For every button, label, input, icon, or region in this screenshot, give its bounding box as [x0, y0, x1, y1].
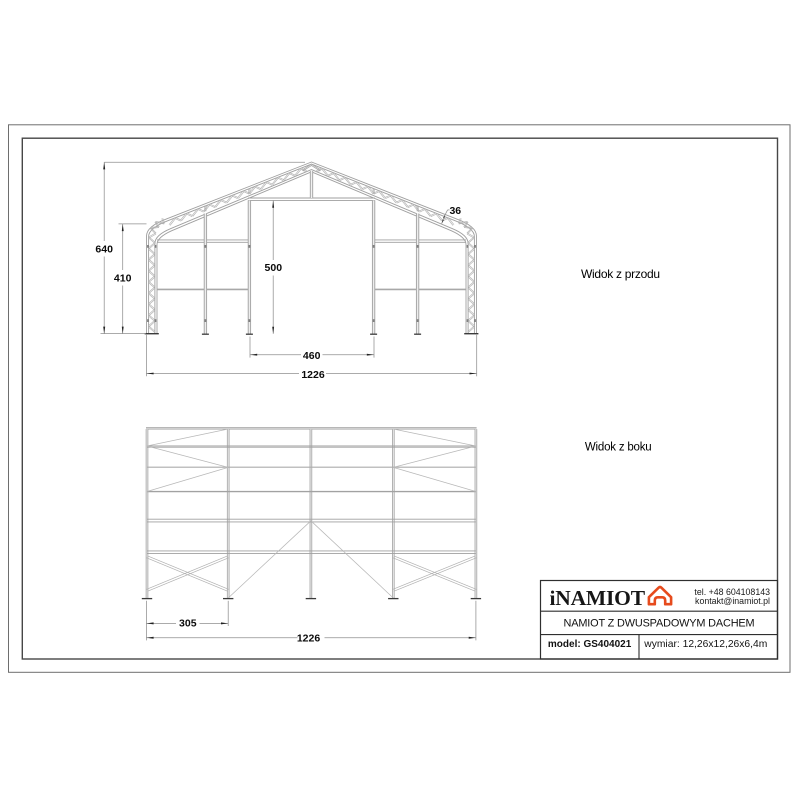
svg-text:kontakt@inamiot.pl: kontakt@inamiot.pl	[695, 596, 770, 606]
svg-text:640: 640	[95, 243, 113, 255]
svg-text:iNAMIOT: iNAMIOT	[550, 586, 646, 610]
svg-text:1226: 1226	[301, 369, 325, 381]
svg-text:wymiar: 12,26x12,26x6,4m: wymiar: 12,26x12,26x6,4m	[643, 639, 767, 650]
svg-text:36: 36	[449, 205, 461, 217]
svg-text:model: GS404021: model: GS404021	[548, 639, 632, 650]
svg-text:Widok z przodu: Widok z przodu	[581, 267, 660, 281]
svg-text:305: 305	[179, 617, 197, 629]
svg-text:1226: 1226	[297, 632, 321, 644]
svg-text:500: 500	[265, 262, 283, 274]
svg-text:460: 460	[303, 350, 321, 362]
svg-text:Widok z boku: Widok z boku	[585, 441, 652, 453]
svg-text:410: 410	[114, 272, 132, 284]
svg-text:NAMIOT Z DWUSPADOWYM DACHEM: NAMIOT Z DWUSPADOWYM DACHEM	[564, 618, 755, 630]
